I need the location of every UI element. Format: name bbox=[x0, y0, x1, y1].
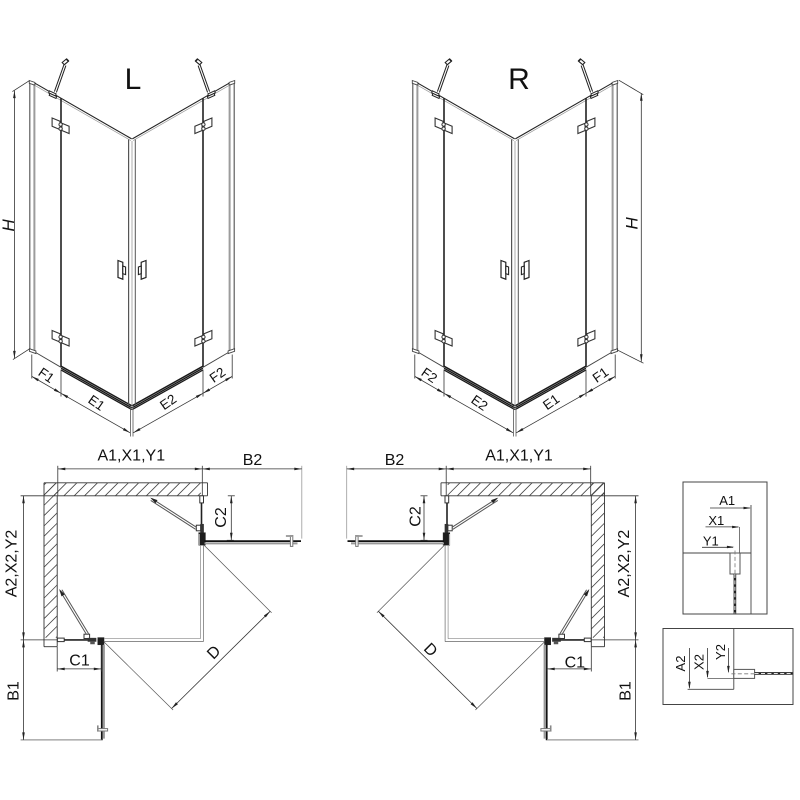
svg-text:C2: C2 bbox=[213, 507, 230, 528]
svg-text:A2,X2,Y2: A2,X2,Y2 bbox=[4, 530, 21, 598]
svg-text:A2,X2,Y2: A2,X2,Y2 bbox=[616, 530, 633, 598]
svg-text:H: H bbox=[622, 217, 641, 230]
svg-text:A1: A1 bbox=[719, 493, 735, 508]
svg-text:B2: B2 bbox=[385, 452, 405, 469]
svg-text:L: L bbox=[125, 63, 142, 96]
svg-text:B1: B1 bbox=[618, 681, 635, 701]
svg-text:X2: X2 bbox=[691, 654, 706, 670]
svg-text:A1,X1,Y1: A1,X1,Y1 bbox=[97, 447, 165, 464]
svg-text:A2: A2 bbox=[673, 656, 688, 672]
svg-text:B1: B1 bbox=[6, 681, 23, 701]
svg-text:R: R bbox=[508, 63, 530, 96]
svg-text:H: H bbox=[0, 219, 18, 232]
svg-text:C1: C1 bbox=[565, 655, 586, 672]
svg-text:Y1: Y1 bbox=[703, 533, 719, 548]
svg-text:C1: C1 bbox=[69, 652, 90, 669]
svg-text:A1,X1,Y1: A1,X1,Y1 bbox=[485, 447, 553, 464]
svg-text:B2: B2 bbox=[243, 452, 263, 469]
svg-text:C2: C2 bbox=[408, 506, 425, 527]
svg-text:Y2: Y2 bbox=[713, 644, 728, 660]
svg-text:X1: X1 bbox=[708, 513, 724, 528]
